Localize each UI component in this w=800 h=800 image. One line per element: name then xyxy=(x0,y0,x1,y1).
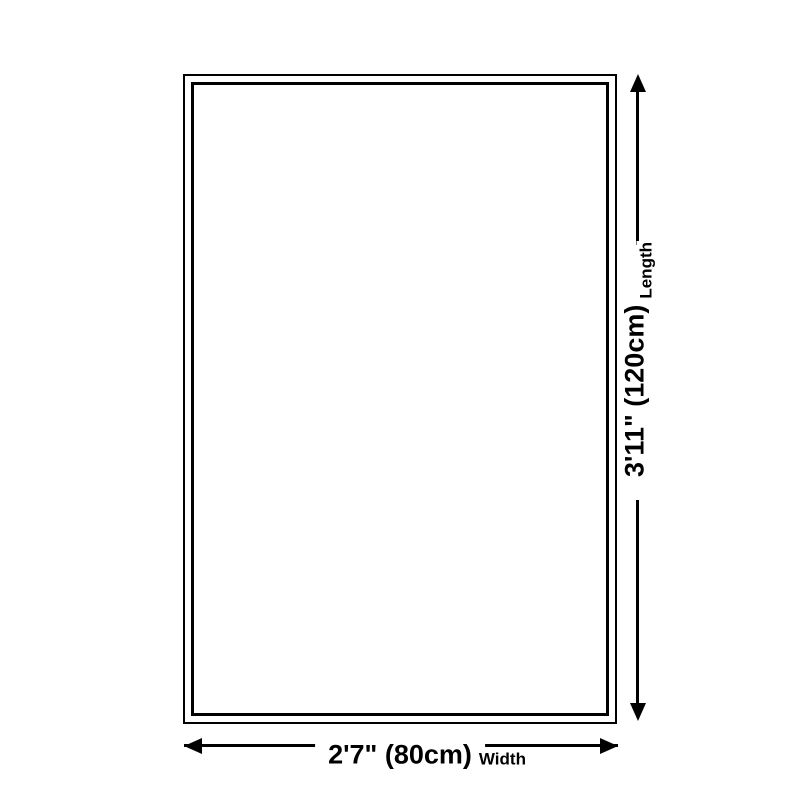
size-diagram: 3'11" (120cm) Length 2'7" (80cm) Width xyxy=(0,0,800,800)
length-dimension-label: 3'11" (120cm) Length xyxy=(620,241,651,479)
width-value: 2'7" (80cm) xyxy=(315,740,485,771)
width-dimension-label: 2'7" (80cm) Width xyxy=(315,740,485,771)
arrow-left-icon xyxy=(184,738,202,754)
length-label: Length xyxy=(637,241,657,300)
length-dimension-line xyxy=(636,89,639,245)
width-label: Width xyxy=(479,750,526,770)
arrow-up-icon xyxy=(630,74,646,92)
length-dimension-line xyxy=(636,500,639,706)
length-value: 3'11" (120cm) xyxy=(620,303,651,479)
arrow-down-icon xyxy=(630,703,646,721)
rug-inner-border xyxy=(191,82,609,716)
arrow-right-icon xyxy=(600,738,618,754)
rug-outline xyxy=(183,74,617,724)
